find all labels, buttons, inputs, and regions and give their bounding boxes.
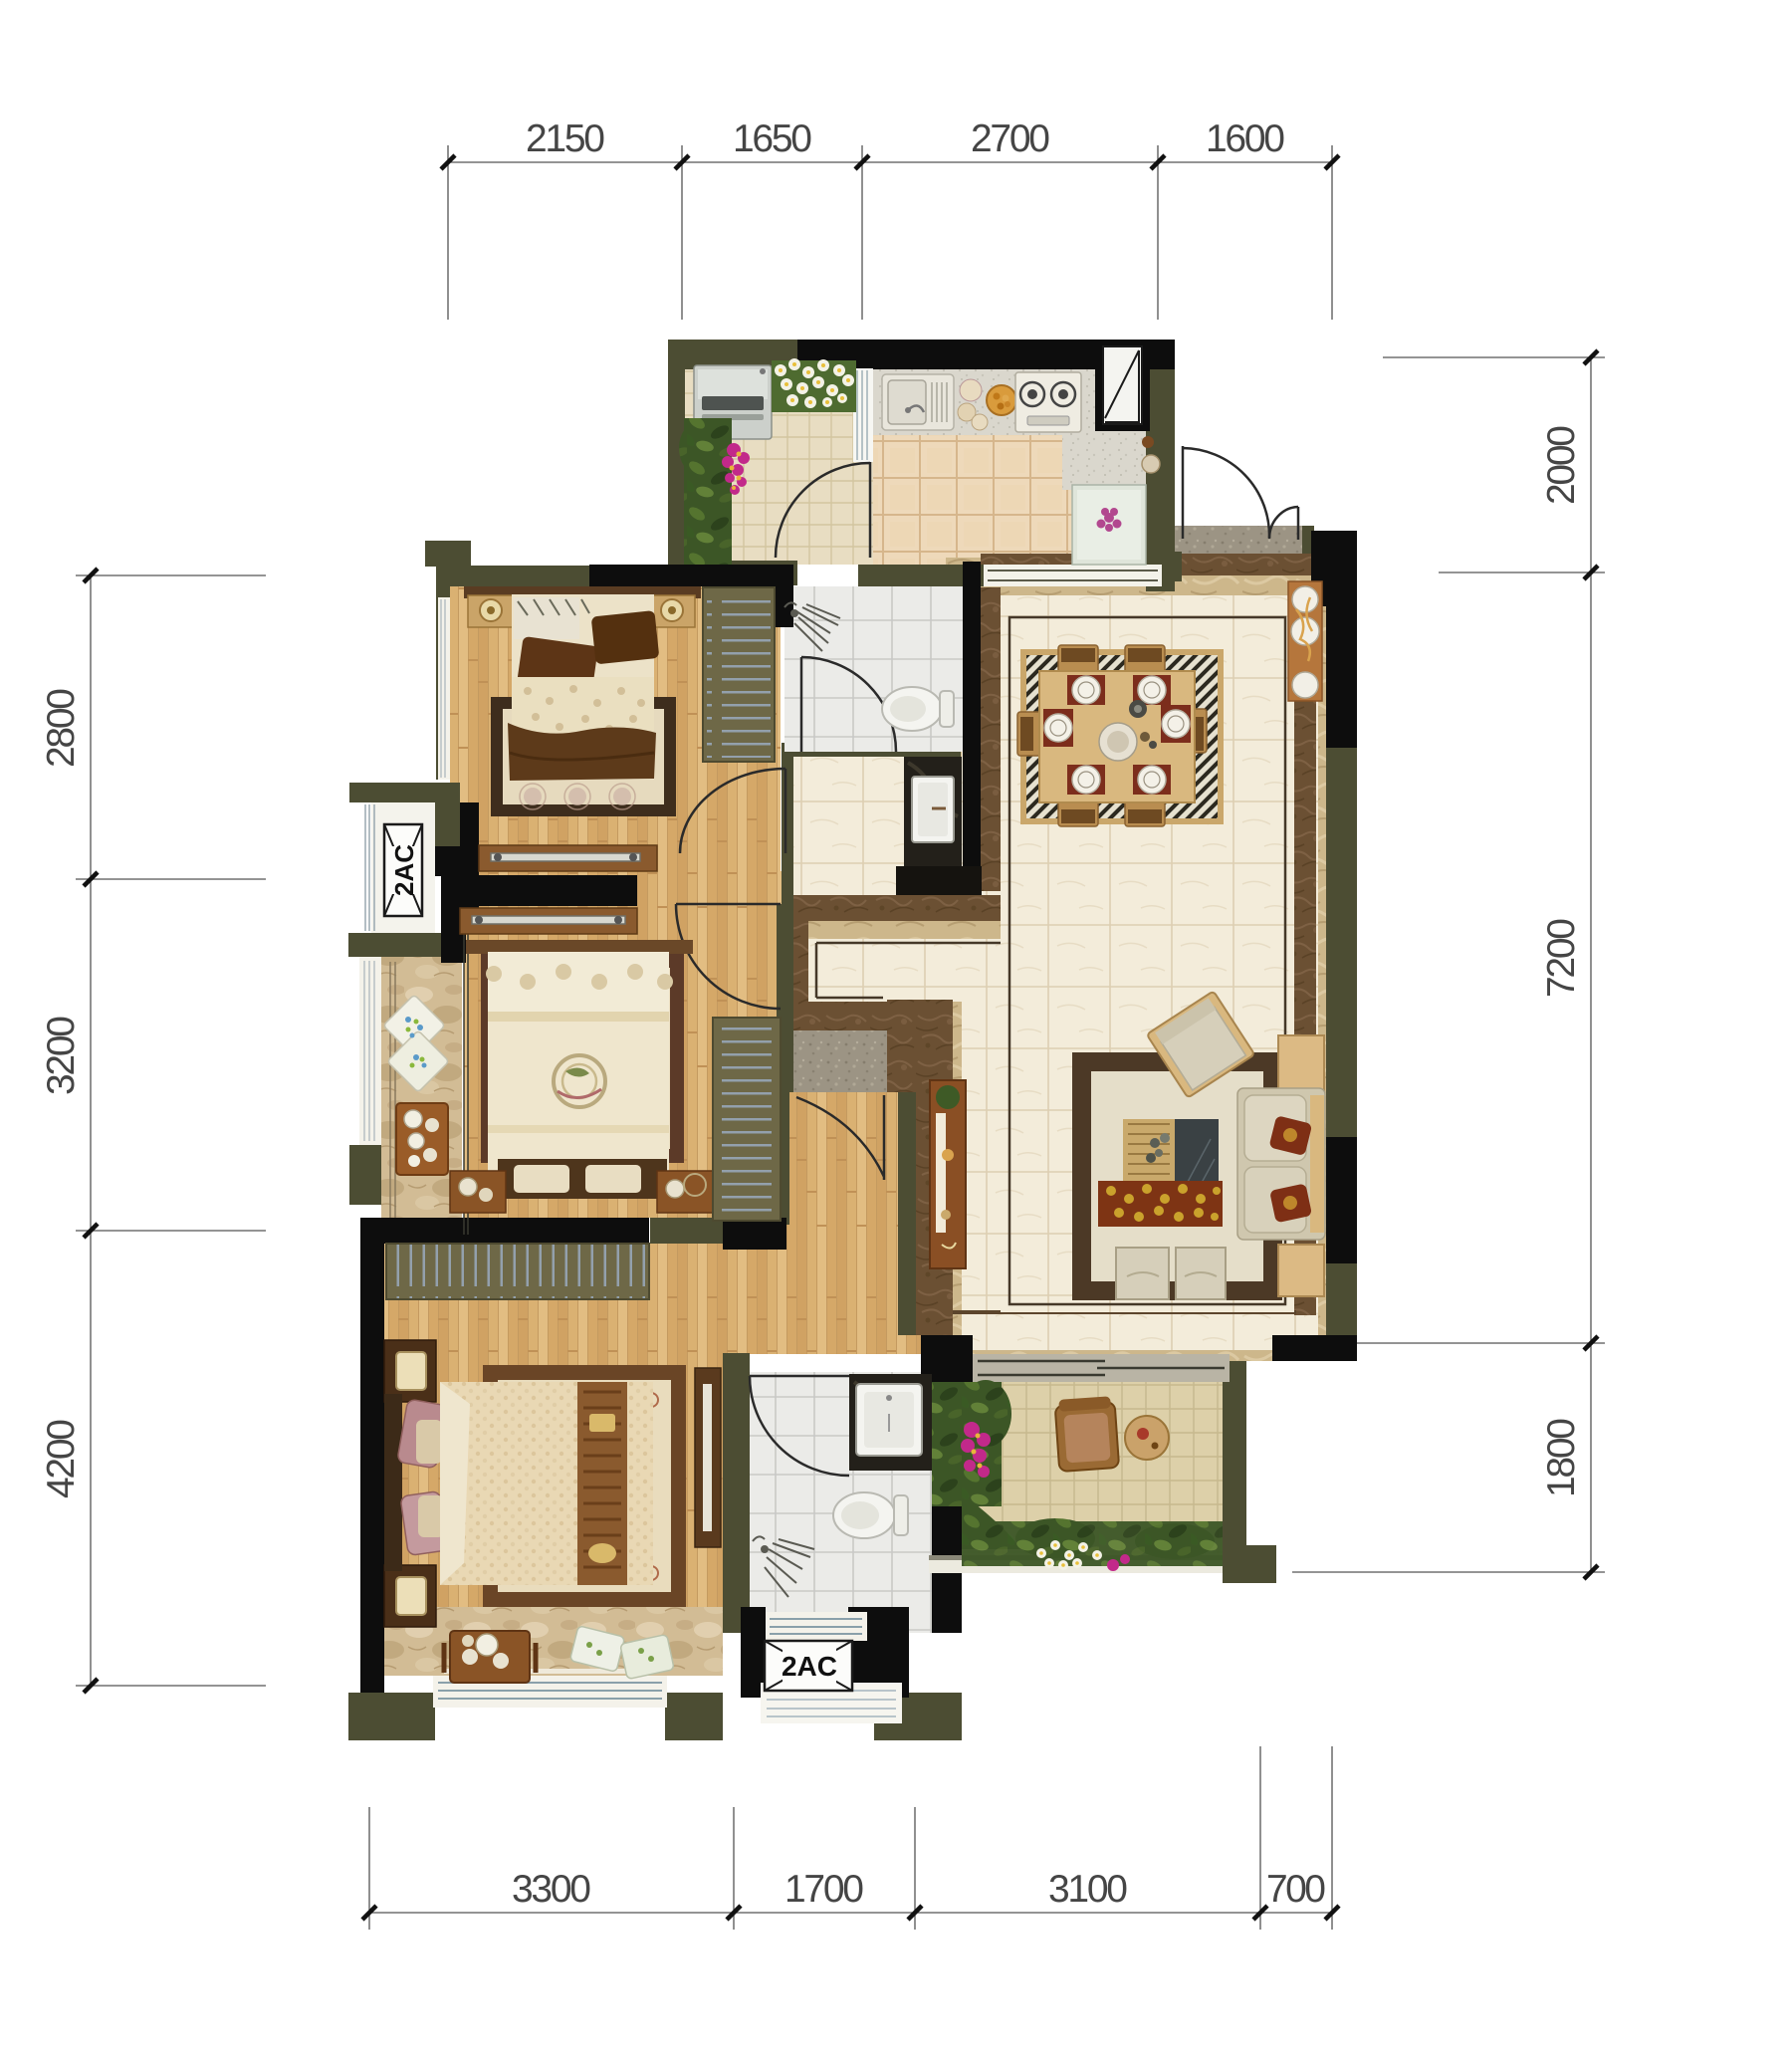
svg-text:1650: 1650 (733, 117, 812, 160)
svg-text:7200: 7200 (1540, 918, 1583, 998)
svg-text:2150: 2150 (526, 117, 605, 160)
svg-text:1600: 1600 (1206, 117, 1285, 160)
svg-text:2AC: 2AC (389, 844, 419, 896)
svg-text:3200: 3200 (40, 1016, 83, 1095)
svg-text:1700: 1700 (784, 1868, 864, 1911)
svg-text:3300: 3300 (512, 1868, 591, 1911)
svg-text:2AC: 2AC (782, 1651, 837, 1682)
svg-text:3100: 3100 (1048, 1868, 1128, 1911)
svg-text:2800: 2800 (40, 688, 83, 768)
svg-text:700: 700 (1266, 1868, 1326, 1911)
svg-text:2700: 2700 (971, 117, 1050, 160)
svg-text:4200: 4200 (40, 1419, 83, 1498)
svg-text:2000: 2000 (1540, 425, 1583, 505)
svg-text:1800: 1800 (1540, 1418, 1583, 1497)
